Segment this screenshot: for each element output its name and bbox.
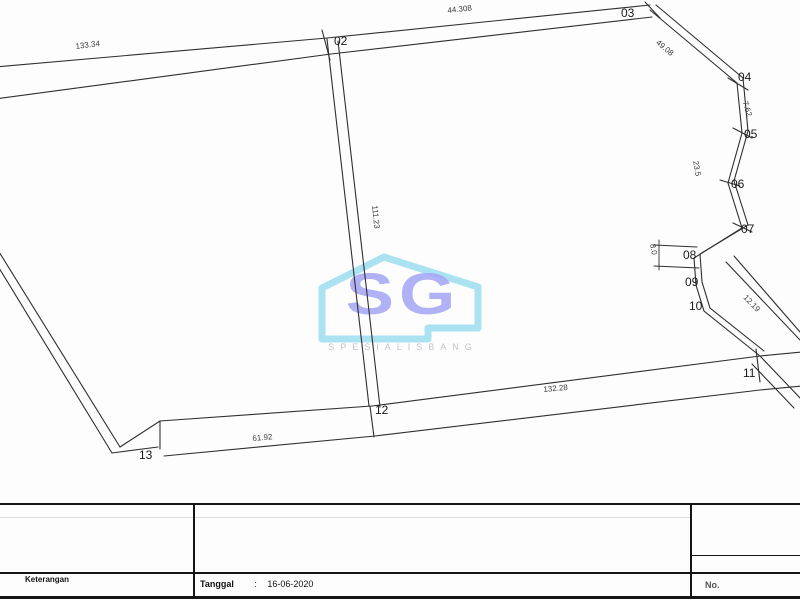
dimension-label: 49.08	[654, 38, 675, 58]
dimension-label: 111.23	[370, 205, 381, 229]
titleblock-date-row: Tanggal : 16-06-2020	[200, 579, 313, 589]
point-label-13: 13	[139, 448, 152, 462]
titleblock-left-label: Keterangan	[25, 575, 69, 584]
dimension-label: 7.62	[740, 100, 753, 118]
sketch-labels: 020304050607080910111213133.3444.30849.0…	[0, 0, 800, 503]
dimension-label: 132.28	[543, 383, 568, 394]
titleblock-faint-rule	[0, 517, 690, 518]
date-label: Tanggal	[200, 579, 234, 589]
titleblock-vertical-divider-left	[193, 503, 195, 599]
point-label-09: 09	[685, 275, 698, 289]
scanned-survey-sheet: SG SPESIALISBANG	[0, 0, 800, 600]
titleblock-vertical-divider-right	[690, 503, 692, 599]
point-label-03: 03	[621, 6, 634, 20]
sheet-bottom-border	[0, 596, 800, 599]
titleblock-top-border	[0, 503, 800, 505]
date-value: 16-06-2020	[267, 579, 313, 589]
point-label-04: 04	[738, 70, 751, 84]
point-label-12: 12	[375, 403, 388, 417]
dimension-label: 61.92	[252, 432, 273, 443]
point-label-07: 07	[741, 222, 754, 236]
dimension-label: 12.19	[742, 293, 762, 314]
point-label-08: 08	[683, 248, 696, 262]
point-label-10: 10	[689, 299, 702, 313]
point-label-11: 11	[743, 366, 755, 380]
point-label-02: 02	[334, 34, 347, 48]
titleblock-row-divider	[0, 572, 800, 574]
point-label-05: 05	[744, 127, 757, 141]
dimension-label: 44.308	[447, 3, 472, 15]
titleblock-right-cell-divider	[690, 555, 800, 556]
dimension-label: 23.5	[691, 160, 703, 177]
dimension-label: 8.0	[648, 243, 659, 256]
titleblock-number-label: No.	[705, 580, 720, 590]
dimension-label: 133.34	[75, 39, 100, 51]
point-label-06: 06	[731, 177, 744, 191]
date-separator: :	[254, 579, 257, 589]
